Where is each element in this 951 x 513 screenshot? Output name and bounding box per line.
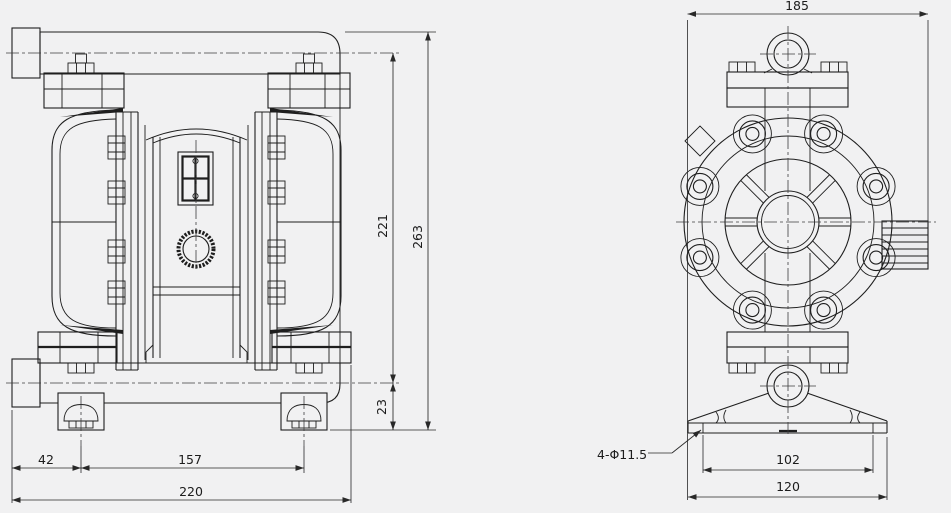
dim-label-42: 42 — [38, 452, 54, 467]
background — [0, 0, 951, 513]
dim-label-102: 102 — [776, 452, 800, 467]
dim-label-23: 23 — [374, 399, 389, 415]
pump-technical-drawing-page: 42 157 220 221 23 263 185 102 120 4-Φ11.… — [0, 0, 951, 513]
dim-label-220: 220 — [179, 484, 203, 499]
dim-label-120: 120 — [776, 479, 800, 494]
dim-label-157: 157 — [178, 452, 202, 467]
dim-label-263: 263 — [410, 225, 425, 249]
dim-label-185: 185 — [785, 0, 809, 13]
dim-label-221: 221 — [375, 214, 390, 238]
pump-technical-drawing: 42 157 220 221 23 263 185 102 120 4-Φ11.… — [0, 0, 951, 513]
dim-label-base-holes: 4-Φ11.5 — [597, 447, 647, 462]
valve-window — [178, 152, 213, 205]
